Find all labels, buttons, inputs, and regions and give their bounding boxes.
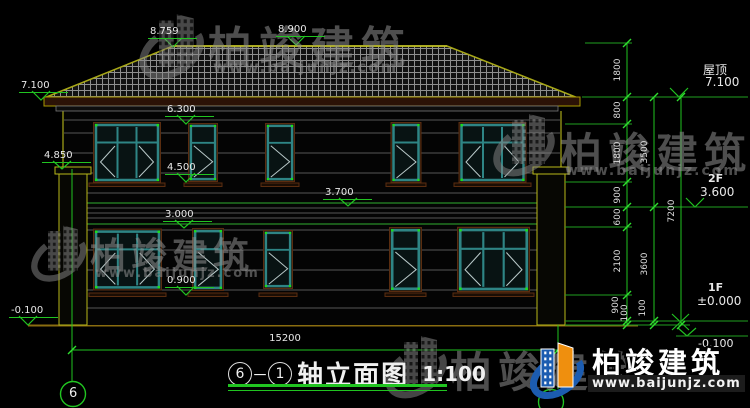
window-1f-large-right bbox=[458, 227, 530, 291]
logo-url: www.baijunjz.com bbox=[588, 375, 745, 392]
dim-600: 600 bbox=[613, 208, 623, 225]
dim-900-2f: 900 bbox=[613, 186, 623, 203]
level-neg0100-left: -0.100 bbox=[9, 305, 58, 318]
floor1-label: 1F bbox=[708, 281, 723, 294]
dim-800: 800 bbox=[613, 101, 623, 118]
roof-level-value: 7.100 bbox=[705, 75, 739, 89]
title-scale: 1:100 bbox=[422, 362, 486, 386]
watermark-url-top: www.baijunjz.com bbox=[213, 58, 398, 76]
window-1f-narrow-2 bbox=[264, 231, 293, 289]
cad-elevation-canvas: 柏竣建筑 www.baijunjz.com 柏竣建筑 www.baijunjz.… bbox=[0, 0, 750, 408]
level-0900: 0.900 bbox=[165, 275, 214, 288]
title-underline-thick bbox=[228, 384, 447, 387]
level-8759: 8.759 bbox=[148, 26, 197, 39]
dim-100-col2: 100 bbox=[638, 299, 648, 316]
level-3000: 3.000 bbox=[163, 209, 212, 222]
dim-1800-roof: 1800 bbox=[613, 59, 623, 82]
title-dash: － bbox=[252, 366, 268, 385]
axis-bubble-6-number: 6 bbox=[69, 386, 77, 401]
floor2-level-value: 3.600 bbox=[700, 185, 734, 199]
window-1f-narrow-3 bbox=[390, 228, 422, 292]
title-axis-to: 1 bbox=[268, 362, 292, 386]
dim-3500: 3500 bbox=[640, 141, 650, 164]
window-2f-large-left bbox=[94, 123, 161, 183]
level-3700: 3.700 bbox=[323, 187, 372, 200]
dim-7200: 7200 bbox=[667, 200, 677, 223]
dim-1800-2f: 1800 bbox=[613, 142, 623, 165]
level-7100: 7.100 bbox=[19, 80, 68, 93]
title-underline-thin bbox=[228, 390, 447, 391]
dim-total-width: 15200 bbox=[255, 333, 315, 344]
floor2-label: 2F bbox=[708, 172, 723, 185]
level-6300: 6.300 bbox=[165, 104, 214, 117]
eave-fascia bbox=[44, 97, 580, 111]
logo-emblem bbox=[528, 332, 592, 402]
level-4850: 4.850 bbox=[42, 150, 91, 163]
level-8900: 8.900 bbox=[276, 24, 325, 37]
title-axis-from: 6 bbox=[228, 362, 252, 386]
dim-3600: 3600 bbox=[640, 253, 650, 276]
window-2f-narrow-3 bbox=[391, 123, 421, 183]
floor1-level-value: ±0.000 bbox=[697, 294, 741, 308]
level-4500: 4.500 bbox=[165, 162, 214, 175]
window-2f-narrow-2 bbox=[266, 124, 295, 182]
dim-100-1f: 100 bbox=[620, 304, 630, 321]
pilaster-right bbox=[533, 167, 569, 325]
dim-2100: 2100 bbox=[613, 250, 623, 273]
